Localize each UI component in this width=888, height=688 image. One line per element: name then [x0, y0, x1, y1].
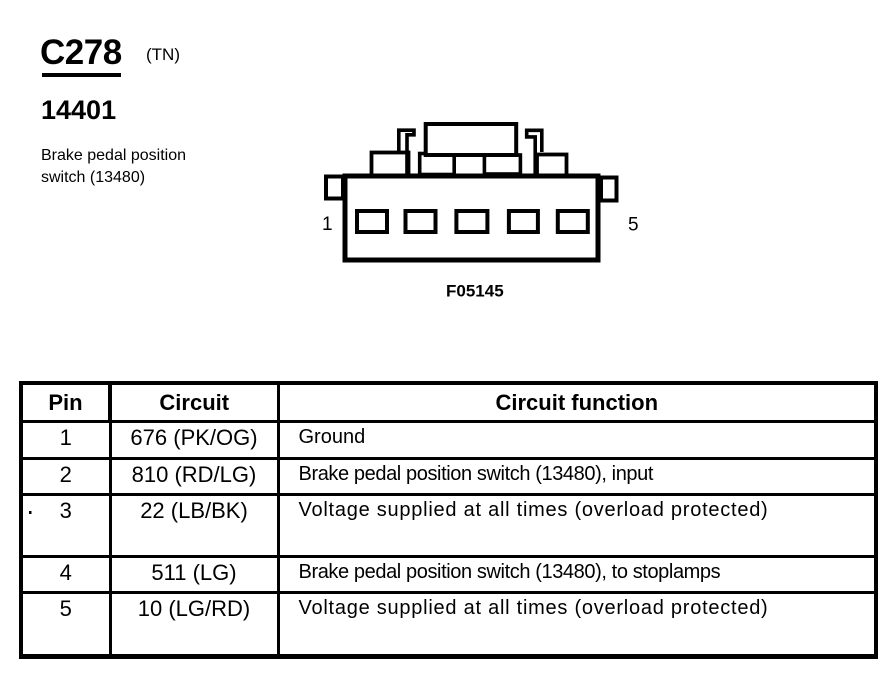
svg-text:1: 1 — [322, 214, 333, 235]
svg-text:5: 5 — [628, 215, 639, 236]
svg-text:F05145: F05145 — [446, 282, 504, 301]
